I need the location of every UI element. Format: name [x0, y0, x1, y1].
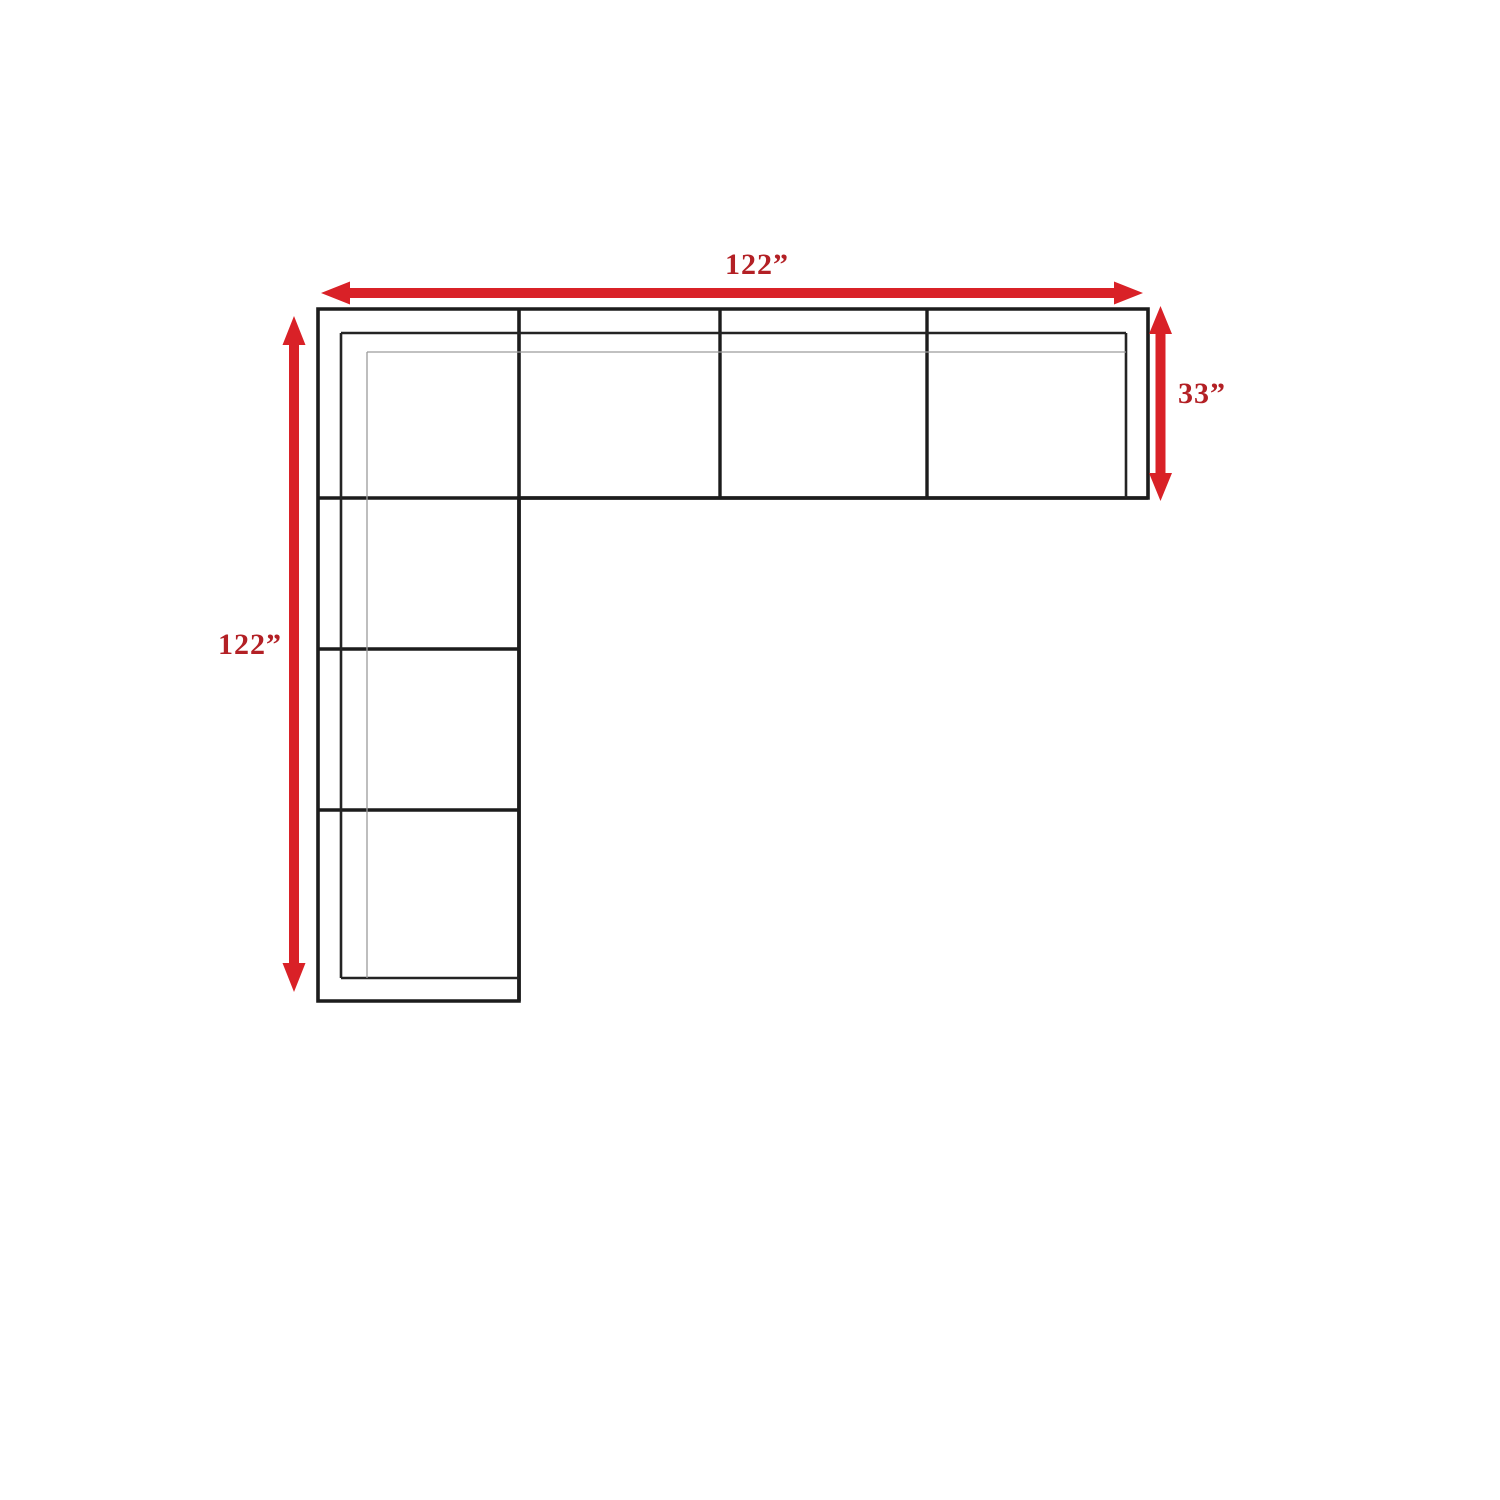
sectional-sofa-diagram [0, 0, 1500, 1500]
dimension-label-top-width: 122” [657, 250, 857, 280]
diagram-canvas: 122” 33” 122” [0, 0, 1500, 1500]
dimension-label-left-length: 122” [150, 630, 350, 660]
double-headed-vertical-arrow-icon [1149, 306, 1172, 501]
double-headed-horizontal-arrow-icon [321, 282, 1143, 305]
sofa-outer-outline [318, 309, 1148, 1001]
dimension-label-right-depth: 33” [1178, 379, 1298, 409]
